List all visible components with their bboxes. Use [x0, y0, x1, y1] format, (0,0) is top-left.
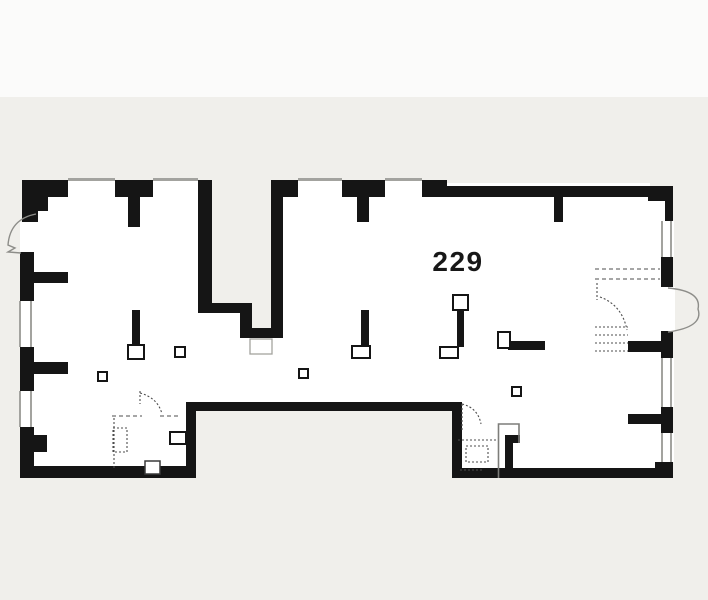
wall-segment [22, 197, 48, 211]
wall-segment [447, 186, 650, 197]
wall-segment [661, 331, 673, 358]
window [660, 221, 674, 257]
wall-segment [661, 257, 673, 287]
wall-segment [22, 211, 38, 223]
partition-stub [132, 310, 140, 347]
partition-stub [508, 341, 545, 350]
column-marker [498, 332, 510, 348]
column-marker [352, 346, 370, 358]
partition-stub [128, 197, 140, 227]
window [19, 391, 34, 427]
window [250, 339, 272, 354]
wall-segment [20, 362, 68, 374]
wall-segment [271, 180, 298, 197]
wall-segment [422, 180, 447, 197]
wall-segment [186, 402, 462, 411]
wall-segment [271, 180, 283, 338]
wall-segment [661, 407, 673, 433]
wall-segment [198, 180, 212, 313]
floor-plan-stage: 229 [0, 0, 708, 600]
partition-stub [457, 310, 464, 347]
column-marker [440, 347, 458, 358]
wall-segment [455, 468, 673, 478]
column-marker [98, 372, 107, 381]
wall-segment [342, 180, 385, 197]
column-marker [175, 347, 185, 357]
wall-segment [452, 402, 462, 478]
wall-segment [22, 180, 68, 197]
partition-stub [361, 310, 369, 347]
window [660, 358, 674, 407]
bathroom-wall [505, 435, 520, 443]
room-number-label: 229 [432, 246, 483, 277]
column-marker [453, 295, 468, 310]
wall-segment [665, 201, 673, 221]
floor-plan-svg: 229 [0, 0, 708, 600]
wall-segment [628, 414, 661, 424]
wall-segment [20, 272, 68, 283]
top-band [0, 0, 708, 97]
partition-stub [554, 197, 563, 222]
wall-segment [648, 186, 673, 201]
column-marker [299, 369, 308, 378]
window [153, 178, 198, 196]
window [68, 178, 115, 196]
column-marker [170, 432, 186, 444]
window [385, 178, 422, 196]
wall-segment [628, 341, 661, 352]
window [19, 301, 34, 347]
bathroom-wall [505, 443, 513, 478]
door-opening [20, 222, 38, 252]
wall-segment [22, 466, 196, 478]
wall-segment [34, 435, 47, 452]
partition-stub [357, 197, 369, 222]
column-marker [512, 387, 521, 396]
window [298, 178, 342, 196]
door-opening [659, 287, 675, 331]
plumbing-fixture [145, 461, 160, 474]
window [660, 433, 674, 462]
wall-segment [115, 180, 153, 197]
column-marker [128, 345, 144, 359]
